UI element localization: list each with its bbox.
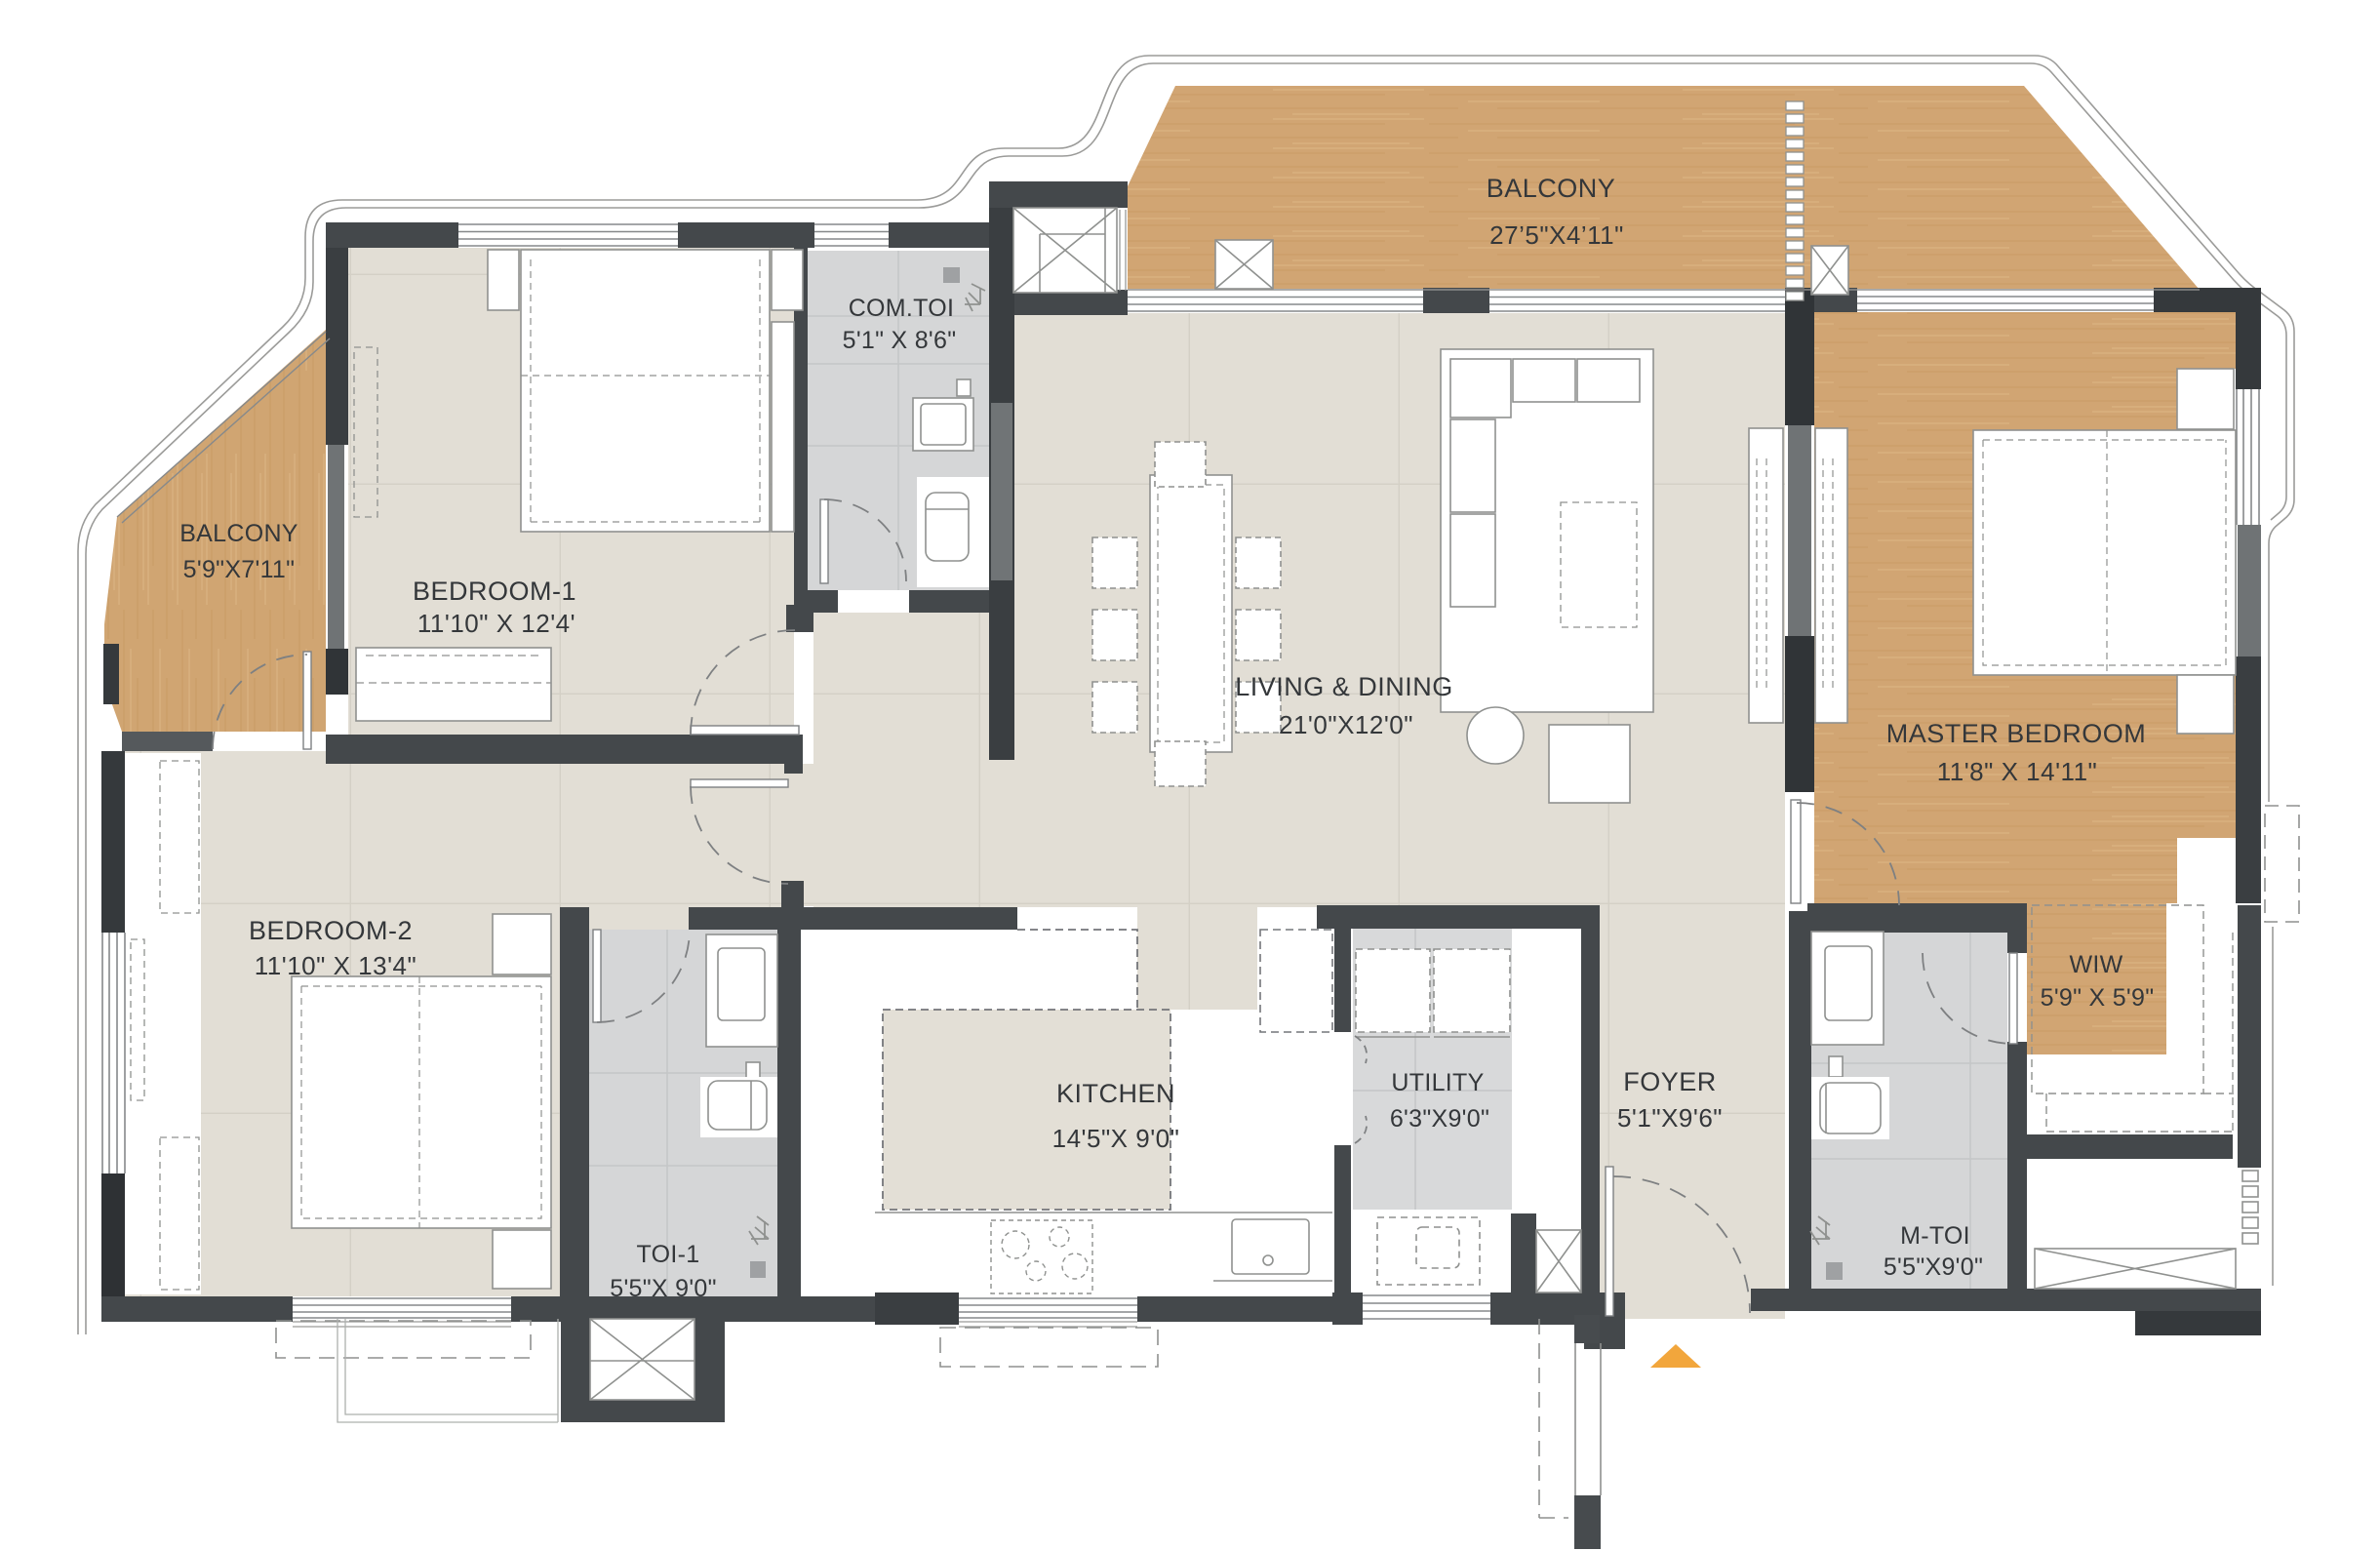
svg-text:5'1"X9'6": 5'1"X9'6" <box>1617 1103 1723 1133</box>
svg-text:LIVING & DINING: LIVING & DINING <box>1235 672 1453 701</box>
svg-text:5'9" X 5'9": 5'9" X 5'9" <box>2041 984 2155 1012</box>
svg-text:TOI-1: TOI-1 <box>637 1241 700 1268</box>
svg-text:5'5"X 9'0": 5'5"X 9'0" <box>610 1275 717 1302</box>
svg-text:14'5"X 9'0": 14'5"X 9'0" <box>1052 1124 1180 1153</box>
svg-text:MASTER BEDROOM: MASTER BEDROOM <box>1886 719 2147 748</box>
svg-text:BALCONY: BALCONY <box>1487 174 1616 203</box>
svg-text:27’5"X4’11": 27’5"X4’11" <box>1489 220 1624 250</box>
svg-text:UTILITY: UTILITY <box>1391 1069 1484 1096</box>
svg-text:21'0"X12'0": 21'0"X12'0" <box>1279 710 1413 739</box>
svg-text:M-TOI: M-TOI <box>1900 1222 1970 1250</box>
svg-text:KITCHEN: KITCHEN <box>1056 1079 1175 1108</box>
svg-text:11'10" X 12'4': 11'10" X 12'4' <box>417 609 575 638</box>
svg-text:BALCONY: BALCONY <box>179 520 298 547</box>
svg-text:6'3"X9'0": 6'3"X9'0" <box>1390 1105 1489 1133</box>
svg-text:5'9"X7'11": 5'9"X7'11" <box>183 556 296 583</box>
svg-text:BEDROOM-1: BEDROOM-1 <box>413 577 576 606</box>
svg-text:11'10" X 13'4": 11'10" X 13'4" <box>255 951 416 980</box>
svg-text:FOYER: FOYER <box>1623 1067 1717 1096</box>
svg-text:WIW: WIW <box>2069 951 2122 978</box>
svg-text:COM.TOI: COM.TOI <box>849 295 955 322</box>
svg-text:5'1" X 8'6": 5'1" X 8'6" <box>843 327 957 354</box>
svg-text:5'5"X9'0": 5'5"X9'0" <box>1884 1253 1983 1281</box>
svg-text:11'8" X 14'11": 11'8" X 14'11" <box>1937 757 2098 786</box>
svg-text:BEDROOM-2: BEDROOM-2 <box>249 916 413 945</box>
